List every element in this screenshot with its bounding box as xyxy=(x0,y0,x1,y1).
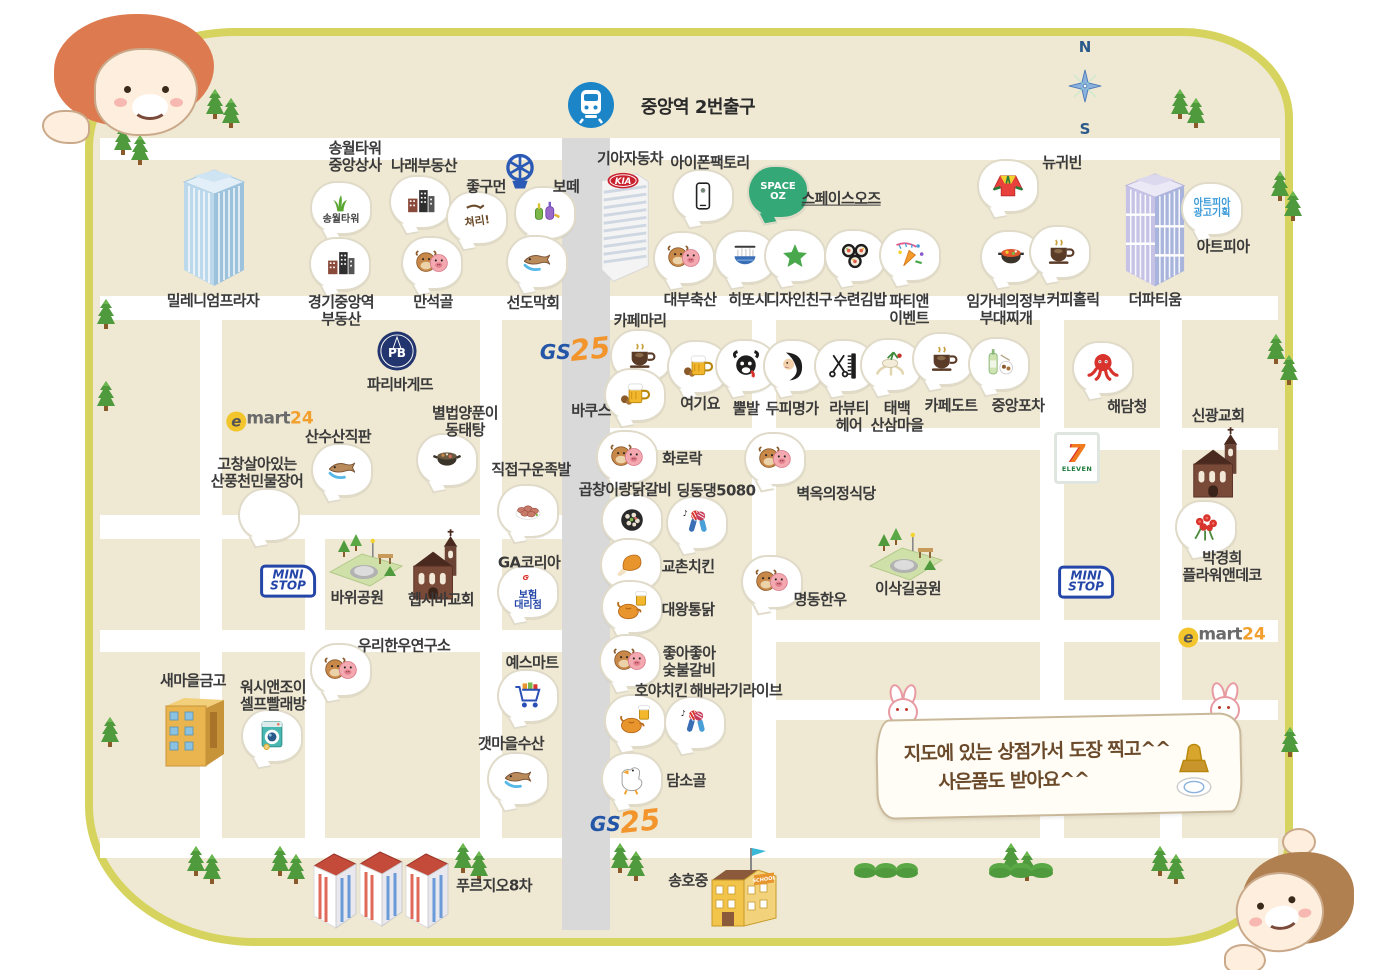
songho-middle-school-label: 송호중 xyxy=(668,873,708,890)
octopus-icon xyxy=(1084,350,1122,386)
tree-icon xyxy=(202,853,222,889)
pot-icon xyxy=(427,444,467,476)
gochang-minmul-jangeo-marker[interactable] xyxy=(238,488,300,542)
sansusan-jikpan-marker[interactable] xyxy=(311,443,373,497)
girl-character xyxy=(36,14,236,154)
hotpot-icon xyxy=(991,241,1031,273)
tree-icon xyxy=(1279,354,1299,390)
saemaul-geumgo xyxy=(158,690,234,776)
imgane-uijeongbu-budae-jjigae-label: 임가네의정부 부대찌개 xyxy=(966,293,1045,327)
cowpig-icon xyxy=(411,246,453,280)
cafe-mari-label: 카페마리 xyxy=(614,313,667,330)
pb-icon: PB xyxy=(374,328,420,374)
neighborhood-map: 중앙역 2번출구 N S 밀레니엄프라자더파티움KIA기아자동차새마을금고신광교… xyxy=(0,0,1373,970)
fish-icon xyxy=(498,763,538,795)
yeogiyo-label: 여기요 xyxy=(680,396,720,413)
tree-icon xyxy=(96,380,116,416)
cowpig-icon xyxy=(663,241,705,275)
subway-station-marker[interactable] xyxy=(568,82,614,128)
calligraphy-icon: 쳐리! xyxy=(457,201,497,235)
hwarorak-label: 화로락 xyxy=(662,451,702,468)
damsogol-label: 담소골 xyxy=(666,773,706,790)
hwarorak-marker[interactable] xyxy=(596,430,658,484)
ministop-east-logo[interactable]: MINISTOP xyxy=(1058,566,1114,599)
tree-icon xyxy=(1283,190,1303,226)
ministop-west-logo[interactable]: MINISTOP xyxy=(260,565,316,598)
kyochon-chicken-label: 교촌치킨 xyxy=(662,559,715,576)
chicken-icon xyxy=(611,548,651,582)
beer-icon xyxy=(615,378,655,412)
gopchang-irang-dakgalbi-label: 곱창이랑닭갈비 xyxy=(579,482,671,499)
isakgil-park-label: 이삭길공원 xyxy=(875,581,941,598)
mics-icon: ♪ xyxy=(677,505,717,541)
daebu-chuksan-marker[interactable] xyxy=(653,231,715,285)
iphone-factory-marker[interactable] xyxy=(672,169,734,223)
bawi-park xyxy=(320,528,404,592)
gyeonggi-jungang-station-budongsan-label: 경기중앙역 부동산 xyxy=(308,294,374,328)
byeokok-uijeong-sikdang-label: 벽옥의정식당 xyxy=(796,486,875,503)
myeongdong-hanwoo-label: 명동한우 xyxy=(794,592,847,609)
haebaragi-live-label: 해바라기라이브 xyxy=(690,683,782,700)
daewang-tongdak-marker[interactable] xyxy=(601,580,663,634)
design-chingu-label: 디자인친구 xyxy=(766,292,832,309)
gmark-icon: G xyxy=(516,573,540,591)
joajoa-sutbul-galbi-label: 좋아좋아 숯불갈비 xyxy=(663,645,716,679)
soju-icon xyxy=(979,346,1019,382)
party-n-event-marker[interactable] xyxy=(879,228,941,282)
design-chingu-marker[interactable] xyxy=(764,229,826,283)
emart24-west-logo[interactable]: emart24 xyxy=(226,409,313,432)
bacchus-label: 바쿠스 xyxy=(571,403,611,420)
hepsibah-church-label: 헵시바교회 xyxy=(408,592,474,609)
svg-text:♪: ♪ xyxy=(683,508,688,518)
tree-icon xyxy=(1280,726,1300,762)
train-icon xyxy=(571,85,611,125)
wash-n-joy-laundry-label: 워시앤조이 셀프빨래방 xyxy=(240,679,306,713)
coffee-icon xyxy=(924,342,962,376)
svg-text:♪: ♪ xyxy=(681,708,686,718)
phone-icon xyxy=(687,178,719,214)
new-gwibin-marker[interactable] xyxy=(977,159,1039,213)
boy-character xyxy=(1218,826,1368,966)
ginseng-icon xyxy=(871,348,911,382)
haedamcheong-marker[interactable] xyxy=(1072,341,1134,395)
fish-icon xyxy=(322,454,362,486)
bawi-park-label: 바위공원 xyxy=(331,590,384,607)
songho-middle-school: SCHOOL xyxy=(706,846,782,938)
artpia-ad-planning-marker[interactable]: 아트피아 광고기획 xyxy=(1181,182,1243,236)
woori-hanwoo-yeonguso-label: 우리한우연구소 xyxy=(358,638,450,655)
songwol-tower-jungang-sangsa-bubble-text: 송월타워 xyxy=(323,215,360,226)
suryeon-gimbap-marker[interactable] xyxy=(824,229,886,283)
mics-icon: ♪ xyxy=(675,705,715,741)
hanbok-icon xyxy=(988,169,1028,203)
byeokok-uijeong-sikdang-marker[interactable] xyxy=(744,432,806,486)
saemaul-geumgo-label: 새마을금고 xyxy=(160,673,226,690)
seondo-makhoe-marker[interactable] xyxy=(506,235,568,289)
taebaek-sansam-maeul-label: 태백 산삼마을 xyxy=(871,400,924,434)
the-partium-label: 더파티움 xyxy=(1129,292,1182,309)
ppulbal-label: 뿔발 xyxy=(733,401,759,418)
hittoshi-label: 히또시 xyxy=(728,292,768,309)
sansusan-jikpan-label: 산수산직판 xyxy=(305,429,371,446)
cafe-dot-label: 카페도트 xyxy=(925,398,978,415)
jungang-pocha-marker[interactable] xyxy=(968,337,1030,391)
space-oz-marker[interactable]: SPACE OZ xyxy=(747,165,809,219)
dingdongdaeng-5080-label: 딩동댕5080 xyxy=(677,483,756,500)
svg-text:KIA: KIA xyxy=(615,177,632,187)
gaetmaeul-susan-label: 갯마을수산 xyxy=(478,736,544,753)
yes-mart-marker[interactable] xyxy=(497,669,559,723)
kia-motors: KIA xyxy=(594,168,656,298)
la-beauty-hair-label: 라뷰티 헤어 xyxy=(829,400,869,434)
cowpig-icon xyxy=(609,644,651,678)
millennium-plaza-label: 밀레니엄프라자 xyxy=(167,293,259,310)
bunny-left-icon xyxy=(884,688,918,722)
ga-korea-insurance-marker[interactable]: G보험 대리점 xyxy=(497,565,559,619)
banner-line-2: 사은품도 받아요^^ xyxy=(938,765,1089,798)
park-kyunghee-flower-n-deco-marker[interactable] xyxy=(1175,500,1237,554)
byeolbeop-yangpuni-dongtaetang-marker[interactable] xyxy=(416,433,478,487)
gimbap-icon xyxy=(836,238,874,274)
songwol-tower-jungang-sangsa-marker[interactable]: 송월타워 xyxy=(310,181,372,235)
park-kyunghee-flower-n-deco-label: 박경희 플라워앤데코 xyxy=(1182,550,1261,584)
coffee-holic-marker[interactable] xyxy=(1029,225,1091,279)
byeolbeop-yangpuni-dongtaetang-label: 별법양푼이 동태탕 xyxy=(432,405,498,439)
bush-icon xyxy=(895,862,919,883)
new-gwibin-label: 뉴귀빈 xyxy=(1042,155,1082,172)
bull-icon xyxy=(727,349,765,383)
artpia-ad-planning-label: 아트피아 xyxy=(1197,239,1250,256)
haedamcheong-label: 해담청 xyxy=(1107,399,1147,416)
noodles-icon xyxy=(726,241,764,273)
paris-baguette-marker[interactable]: PB xyxy=(368,326,426,376)
paris-baguette-label: 파리바게뜨 xyxy=(367,377,433,394)
jokumeon-label: 좋구먼 xyxy=(466,179,506,196)
wash-n-joy-laundry-marker[interactable] xyxy=(241,709,303,763)
fish-icon xyxy=(517,246,557,278)
pan-icon xyxy=(613,502,651,538)
millennium-plaza xyxy=(178,168,250,304)
haebaragi-live-marker[interactable]: ♪ xyxy=(664,696,726,750)
daebu-chuksan-label: 대부축산 xyxy=(664,292,717,309)
bacchus-marker[interactable] xyxy=(604,368,666,422)
scalp-icon xyxy=(776,348,812,384)
daewang-tongdak-label: 대왕통닭 xyxy=(662,602,715,619)
kia-motors-label: 기아자동차 xyxy=(597,151,663,168)
suryeon-gimbap-label: 수련김밥 xyxy=(834,292,887,309)
cowpig-icon xyxy=(320,653,362,687)
grass-icon xyxy=(326,191,356,215)
scissors-icon xyxy=(826,348,864,384)
space-oz-bubble-text: SPACE OZ xyxy=(760,182,796,203)
compass-north-label: N xyxy=(1079,38,1092,56)
seven-eleven-logo[interactable]: 7ELEVEN xyxy=(1054,432,1100,484)
joajoa-sutbul-galbi-marker[interactable] xyxy=(599,634,661,688)
compass: N S xyxy=(1067,68,1103,108)
stamp-icon xyxy=(1166,742,1222,808)
songwol-tower-jungang-sangsa-label: 송월타워 중앙상사 xyxy=(329,140,382,174)
buildings-icon xyxy=(401,185,439,219)
washer-icon xyxy=(254,718,290,754)
narae-budongsan-marker[interactable] xyxy=(389,175,451,229)
manseokgol-marker[interactable] xyxy=(401,236,463,290)
coffee-icon xyxy=(1041,235,1079,269)
prugio-8 xyxy=(312,850,452,936)
emart24-east-logo[interactable]: emart24 xyxy=(1178,625,1265,648)
gochang-minmul-jangeo-label: 고창살아있는 산풍천민물장어 xyxy=(211,456,303,490)
tree-icon xyxy=(626,850,646,886)
dingdongdaeng-5080-marker[interactable]: ♪ xyxy=(666,496,728,550)
tree-icon xyxy=(286,853,306,889)
jungang-pocha-label: 중앙포차 xyxy=(992,398,1045,415)
svg-text:쳐리!: 쳐리! xyxy=(464,212,491,229)
svg-text:PB: PB xyxy=(388,346,406,360)
damsogol-marker[interactable] xyxy=(601,752,663,806)
tree-icon xyxy=(1186,97,1206,133)
dupi-myeongga-label: 두피명가 xyxy=(766,401,819,418)
tree-icon xyxy=(1166,853,1186,889)
isakgil-park xyxy=(860,522,944,586)
gyeonggi-jungang-station-budongsan-marker[interactable] xyxy=(309,237,371,291)
flowers-icon xyxy=(1187,509,1225,545)
cafe-dot-marker[interactable] xyxy=(912,332,974,386)
artpia-ad-planning-bubble-text: 아트피아 광고기획 xyxy=(1194,199,1231,220)
ga-korea-insurance-bubble-text: 보험 대리점 xyxy=(514,591,542,612)
space-oz-label: 스페이스오즈 xyxy=(801,191,880,208)
cowpig-icon xyxy=(751,565,793,599)
perfume-icon xyxy=(526,197,564,229)
tree-icon xyxy=(96,298,116,334)
prugio-8-label: 푸르지오8차 xyxy=(456,878,532,895)
cowpig-icon xyxy=(606,440,648,474)
tree-icon xyxy=(100,716,120,752)
bush-icon xyxy=(1030,862,1054,883)
manseokgol-label: 만석골 xyxy=(413,294,453,311)
hoya-chicken-marker[interactable] xyxy=(604,694,666,748)
cowpig-icon xyxy=(754,442,796,476)
yes-mart-label: 예스마트 xyxy=(506,655,559,672)
duck-icon xyxy=(613,761,651,797)
party-n-event-label: 파티앤 이벤트 xyxy=(889,293,929,327)
iphone-factory-label: 아이폰팩토리 xyxy=(670,155,749,172)
ga-korea-insurance-label: GA코리아 xyxy=(498,555,560,572)
pork-icon xyxy=(507,495,549,527)
seondo-makhoe-label: 선도막회 xyxy=(507,295,560,312)
chickbeer-icon xyxy=(611,589,653,625)
narae-budongsan-label: 나래부동산 xyxy=(391,158,457,175)
compass-south-label: S xyxy=(1080,120,1091,138)
station-exit-label: 중앙역 2번출구 xyxy=(641,93,755,119)
party-icon xyxy=(891,237,929,273)
gs25-north-logo[interactable]: GS25 xyxy=(540,332,610,366)
botte-label: 보떼 xyxy=(553,179,579,196)
banner-line-1: 지도에 있는 상점가서 도장 찍고^^ xyxy=(903,734,1170,769)
star-icon xyxy=(777,239,813,273)
jikjeop-guun-jokbal-marker[interactable] xyxy=(497,484,559,538)
hoya-chicken-label: 호야치킨 xyxy=(635,683,688,700)
coffee-holic-label: 커피홀릭 xyxy=(1047,292,1100,309)
the-partium xyxy=(1120,172,1190,304)
jikjeop-guun-jokbal-label: 직접구운족발 xyxy=(491,462,570,479)
jokumeon-marker[interactable]: 쳐리! xyxy=(446,191,508,245)
shinkwang-church-label: 신광교회 xyxy=(1192,408,1245,425)
chickbeer-icon xyxy=(614,703,656,739)
buildings-icon xyxy=(321,247,359,281)
beer-icon xyxy=(678,350,718,384)
cart-icon xyxy=(508,678,548,714)
compass-rose-icon xyxy=(1067,89,1103,108)
gaetmaeul-susan-marker[interactable] xyxy=(487,752,549,806)
